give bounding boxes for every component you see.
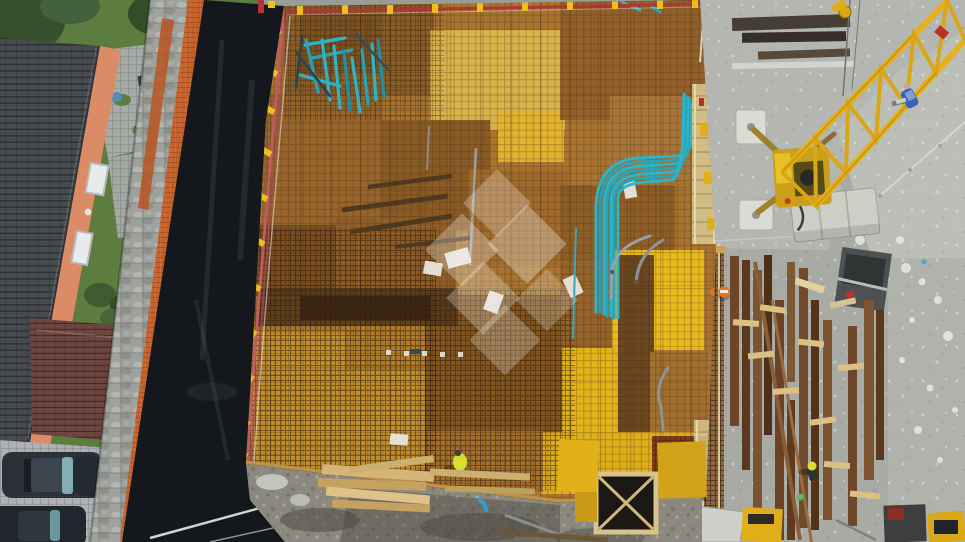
window bbox=[86, 163, 109, 196]
concrete-yard bbox=[688, 0, 965, 542]
shaft-opening bbox=[596, 474, 656, 532]
parked-car-1 bbox=[2, 452, 102, 498]
green-object bbox=[797, 494, 804, 501]
parked-car-2 bbox=[0, 506, 86, 542]
formwork-panel bbox=[575, 492, 597, 522]
yellow-machine bbox=[741, 507, 783, 542]
formwork-panel bbox=[657, 441, 707, 499]
blue-garden-object bbox=[112, 92, 122, 102]
aerial-construction-site-photo bbox=[0, 0, 965, 542]
windshield bbox=[62, 457, 73, 494]
traffic-cone bbox=[718, 287, 730, 301]
windshield bbox=[50, 510, 60, 541]
formwork-panel bbox=[557, 439, 600, 493]
facade-lamp bbox=[85, 209, 92, 216]
photo-canvas bbox=[0, 0, 965, 542]
